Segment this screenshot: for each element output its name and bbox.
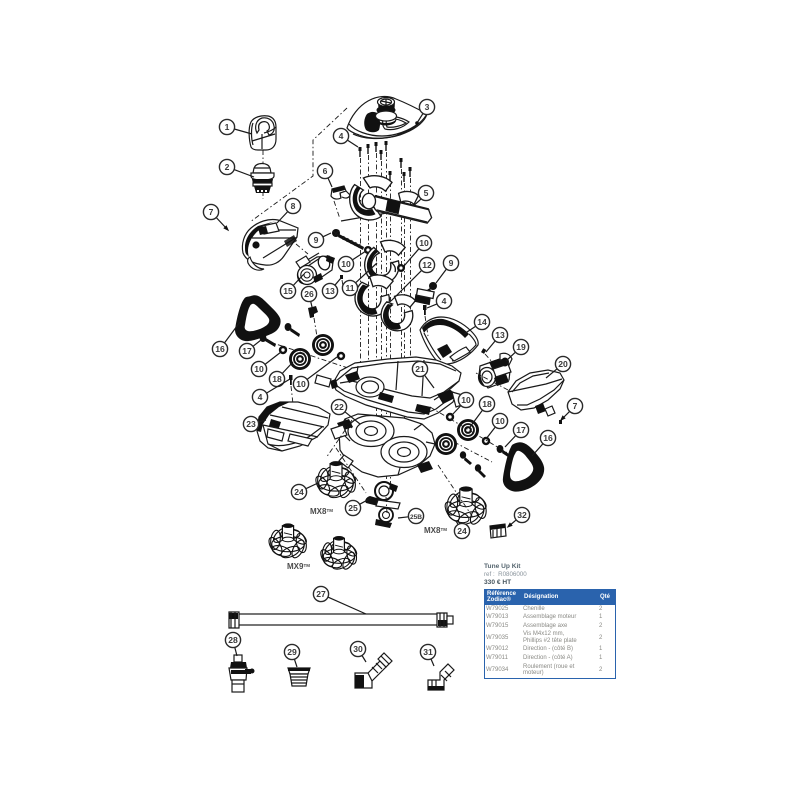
- svg-text:19: 19: [516, 342, 526, 352]
- svg-text:13: 13: [325, 286, 335, 296]
- svg-text:27: 27: [316, 589, 326, 599]
- svg-text:22: 22: [334, 402, 344, 412]
- svg-text:25: 25: [348, 503, 358, 513]
- svg-text:13: 13: [495, 330, 505, 340]
- svg-text:9: 9: [449, 258, 454, 268]
- svg-text:MX9TM: MX9TM: [287, 562, 310, 571]
- svg-text:4: 4: [442, 296, 447, 306]
- svg-text:25B: 25B: [410, 514, 422, 521]
- svg-text:MX8TM: MX8TM: [310, 507, 333, 516]
- svg-text:10: 10: [341, 259, 351, 269]
- svg-text:30: 30: [353, 644, 363, 654]
- svg-text:5: 5: [424, 188, 429, 198]
- svg-text:14: 14: [477, 317, 487, 327]
- svg-text:18: 18: [272, 374, 282, 384]
- svg-text:12: 12: [422, 260, 432, 270]
- svg-text:10: 10: [254, 364, 264, 374]
- svg-text:10: 10: [495, 416, 505, 426]
- svg-text:10: 10: [461, 395, 471, 405]
- svg-text:7: 7: [573, 401, 578, 411]
- svg-text:24: 24: [294, 487, 304, 497]
- svg-text:28: 28: [228, 635, 238, 645]
- svg-text:21: 21: [415, 364, 425, 374]
- svg-text:16: 16: [543, 433, 553, 443]
- svg-text:2: 2: [225, 162, 230, 172]
- svg-text:24: 24: [457, 526, 467, 536]
- svg-text:20: 20: [558, 359, 568, 369]
- svg-text:26: 26: [304, 289, 314, 299]
- svg-text:9: 9: [314, 235, 319, 245]
- svg-text:1: 1: [225, 122, 230, 132]
- svg-text:4: 4: [258, 392, 263, 402]
- svg-text:18: 18: [482, 399, 492, 409]
- svg-text:29: 29: [287, 647, 297, 657]
- svg-text:16: 16: [215, 344, 225, 354]
- svg-text:31: 31: [423, 647, 433, 657]
- svg-text:15: 15: [283, 286, 293, 296]
- svg-text:8: 8: [291, 201, 296, 211]
- svg-text:23: 23: [246, 419, 256, 429]
- svg-text:MX8TM: MX8TM: [424, 526, 447, 535]
- svg-text:3: 3: [425, 102, 430, 112]
- svg-text:10: 10: [296, 379, 306, 389]
- svg-text:11: 11: [345, 283, 354, 293]
- svg-text:32: 32: [517, 510, 527, 520]
- svg-text:17: 17: [516, 425, 526, 435]
- svg-text:7: 7: [209, 207, 214, 217]
- svg-text:4: 4: [339, 131, 344, 141]
- svg-text:17: 17: [242, 346, 252, 356]
- svg-text:6: 6: [323, 166, 328, 176]
- svg-text:10: 10: [419, 238, 429, 248]
